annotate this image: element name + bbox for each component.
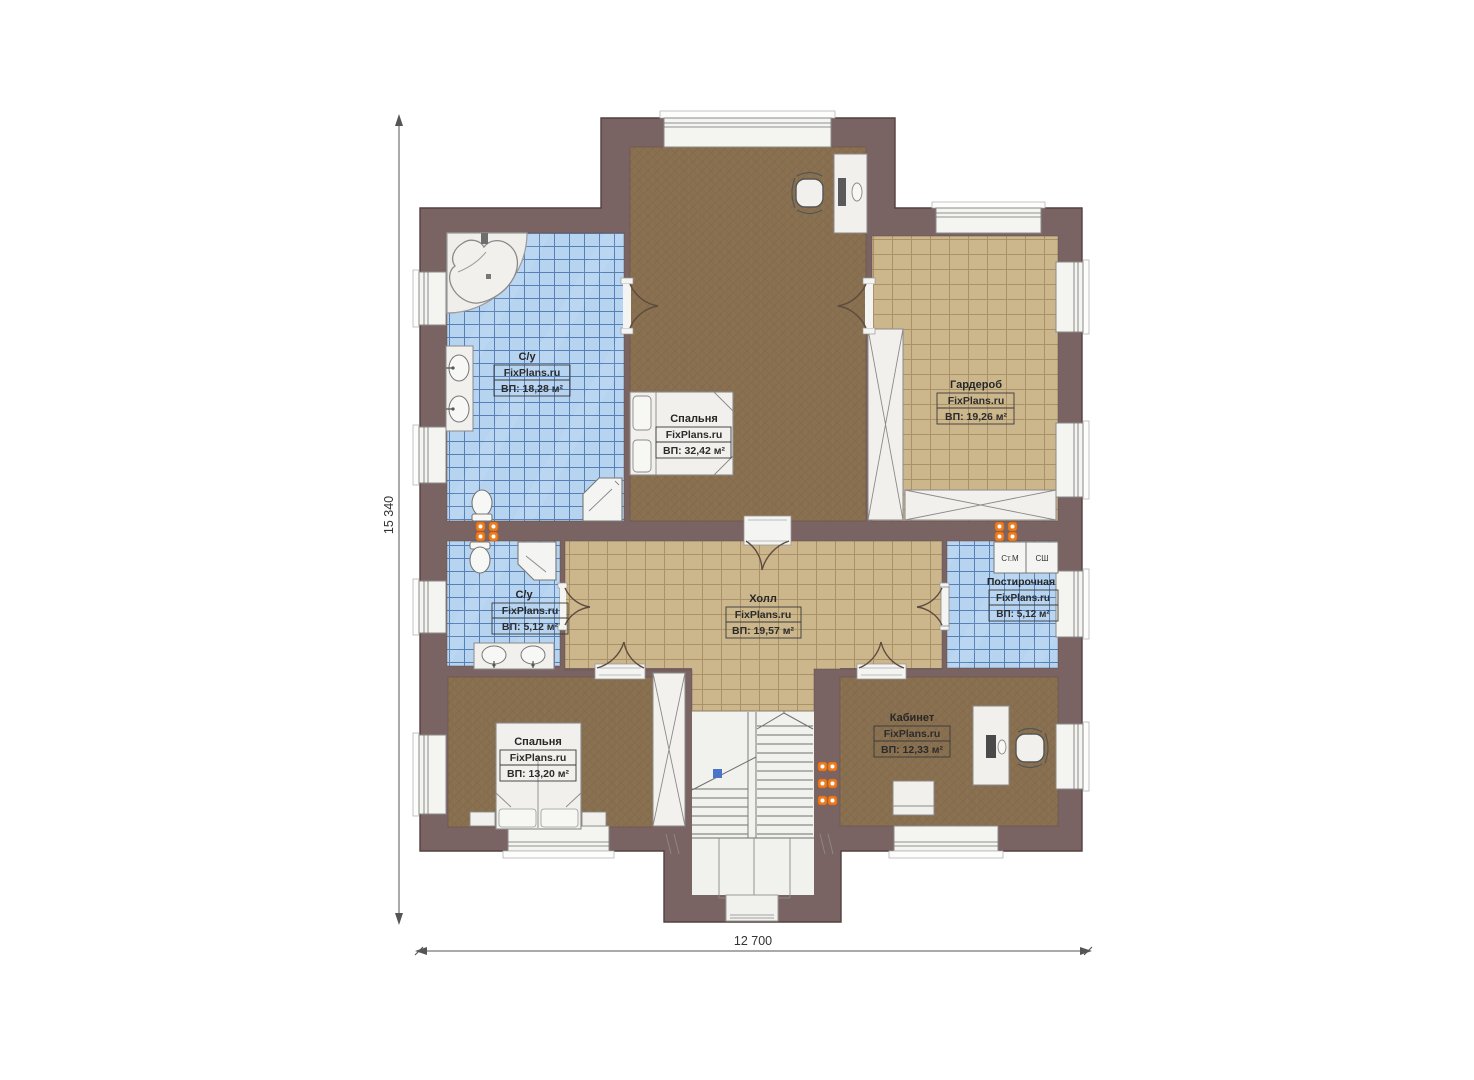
svg-text:Ст.М: Ст.М: [1001, 554, 1019, 563]
svg-text:FixPlans.ru: FixPlans.ru: [996, 593, 1050, 604]
svg-text:FixPlans.ru: FixPlans.ru: [884, 728, 941, 740]
svg-text:FixPlans.ru: FixPlans.ru: [666, 429, 723, 441]
svg-text:ВП: 5,12 м²: ВП: 5,12 м²: [502, 621, 559, 633]
svg-text:ВП: 13,20 м²: ВП: 13,20 м²: [507, 768, 570, 780]
svg-text:ВП: 19,26 м²: ВП: 19,26 м²: [945, 411, 1008, 423]
svg-text:Спальня: Спальня: [514, 736, 562, 748]
svg-text:Холл: Холл: [749, 593, 777, 605]
svg-text:С/у: С/у: [518, 351, 536, 363]
svg-text:С/у: С/у: [515, 589, 533, 601]
svg-text:FixPlans.ru: FixPlans.ru: [502, 605, 559, 617]
svg-text:СШ: СШ: [1035, 554, 1048, 563]
svg-text:ВП: 19,57 м²: ВП: 19,57 м²: [732, 625, 795, 637]
svg-text:Гардероб: Гардероб: [950, 379, 1002, 391]
svg-text:12 700: 12 700: [734, 934, 772, 948]
svg-text:15 340: 15 340: [382, 496, 396, 534]
svg-text:Спальня: Спальня: [670, 413, 718, 425]
svg-text:FixPlans.ru: FixPlans.ru: [948, 395, 1005, 407]
svg-text:Постирочная: Постирочная: [987, 576, 1055, 588]
svg-text:FixPlans.ru: FixPlans.ru: [735, 609, 792, 621]
svg-text:ВП: 32,42 м²: ВП: 32,42 м²: [663, 445, 726, 457]
svg-text:FixPlans.ru: FixPlans.ru: [510, 752, 567, 764]
svg-text:ВП: 12,33 м²: ВП: 12,33 м²: [881, 744, 944, 756]
svg-text:ВП: 5,12 м²: ВП: 5,12 м²: [996, 609, 1050, 620]
svg-text:ВП: 18,28 м²: ВП: 18,28 м²: [501, 383, 564, 395]
svg-text:Кабинет: Кабинет: [890, 712, 935, 724]
svg-text:FixPlans.ru: FixPlans.ru: [504, 367, 561, 379]
